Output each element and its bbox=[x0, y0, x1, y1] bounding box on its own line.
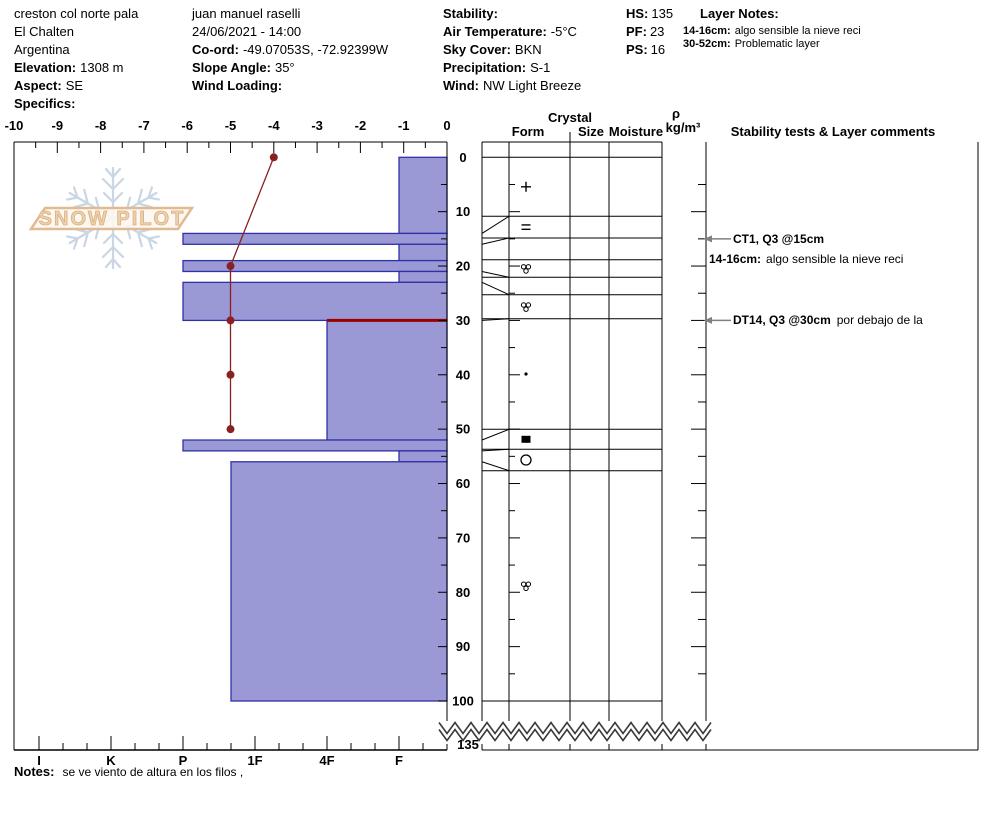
stability-test-dt14-text: DT14, Q3 @30cm bbox=[733, 313, 831, 327]
stability-test-ct1-text: CT1, Q3 @15cm bbox=[733, 232, 824, 246]
grain-symbol-dot-4 bbox=[524, 372, 527, 375]
grain-symbol-cluster-7 bbox=[521, 582, 530, 591]
grain-symbol-plus-0 bbox=[521, 182, 531, 192]
stability-test-dt14: DT14, Q3 @30cmpor debajo de la bbox=[733, 313, 923, 327]
hardness-bar-layer-5 bbox=[183, 282, 447, 320]
depth-axis-label: 50 bbox=[456, 422, 470, 437]
temp-axis-label: -5 bbox=[225, 118, 237, 133]
depth-axis-label: 0 bbox=[459, 150, 466, 165]
profile-chart-svg: SNOW PILOT-10-9-8-7-6-5-4-3-2-10IKP1F4FF… bbox=[0, 0, 994, 840]
layer-comment-text: algo sensible la nieve reci bbox=[766, 252, 903, 266]
hardness-axis-label: 4F bbox=[319, 753, 334, 768]
snowpilot-watermark-text: SNOW PILOT bbox=[39, 208, 186, 230]
temp-axis-label: -10 bbox=[5, 118, 24, 133]
grain-symbol-square-filled-5 bbox=[522, 436, 531, 443]
temp-axis-label: 0 bbox=[443, 118, 450, 133]
temp-axis-label: -2 bbox=[355, 118, 367, 133]
hardness-bar-layer-9 bbox=[231, 462, 447, 701]
hardness-bar-layer-8 bbox=[399, 451, 447, 462]
hardness-bar-layer-4 bbox=[399, 271, 447, 282]
depth-axis-label: 60 bbox=[456, 476, 470, 491]
snowpilot-profile-page: { "info_left": { "site": "creston col no… bbox=[0, 0, 994, 840]
temp-axis-label: -4 bbox=[268, 118, 280, 133]
temperature-point-3 bbox=[227, 371, 235, 379]
temp-axis-label: -3 bbox=[311, 118, 323, 133]
notes-label: Notes: bbox=[14, 764, 54, 779]
notes-footer: Notes:se ve viento de altura en los filo… bbox=[14, 764, 243, 779]
hardness-bar-layer-1 bbox=[183, 233, 447, 244]
temperature-point-0 bbox=[270, 153, 278, 161]
stability-arrow-head-2 bbox=[704, 317, 712, 324]
depth-axis-label: 10 bbox=[456, 204, 470, 219]
hardness-bar-layer-6 bbox=[327, 320, 447, 440]
depth-axis-label: 100 bbox=[452, 694, 474, 709]
depth-axis-label: 40 bbox=[456, 367, 470, 382]
layer-comment-14-16: 14-16cm:algo sensible la nieve reci bbox=[709, 252, 903, 266]
notes-text: se ve viento de altura en los filos , bbox=[62, 765, 243, 779]
hardness-bar-layer-2 bbox=[399, 244, 447, 260]
hardness-bar-layer-0 bbox=[399, 157, 447, 233]
hardness-bar-layer-7 bbox=[183, 440, 447, 451]
hardness-bar-layer-3 bbox=[183, 261, 447, 272]
stability-arrow-head-0 bbox=[704, 235, 712, 242]
grain-symbol-circle-open-6 bbox=[521, 455, 531, 465]
temp-axis-label: -1 bbox=[398, 118, 410, 133]
depth-axis-label: 90 bbox=[456, 639, 470, 654]
temperature-point-4 bbox=[227, 425, 235, 433]
depth-axis-label: 80 bbox=[456, 585, 470, 600]
depth-axis-label: 20 bbox=[456, 259, 470, 274]
grain-symbol-equals-1 bbox=[522, 225, 531, 229]
total-depth-label: 135 bbox=[457, 737, 479, 752]
temp-axis-label: -7 bbox=[138, 118, 150, 133]
temp-axis-label: -8 bbox=[95, 118, 107, 133]
stability-test-ct1: CT1, Q3 @15cm bbox=[733, 232, 824, 246]
temp-axis-label: -6 bbox=[181, 118, 193, 133]
temperature-point-1 bbox=[227, 262, 235, 270]
temp-axis-label: -9 bbox=[52, 118, 64, 133]
grain-symbol-cluster-2 bbox=[521, 265, 530, 274]
temperature-point-2 bbox=[227, 316, 235, 324]
grain-symbol-cluster-3 bbox=[521, 303, 530, 312]
layer-comment-range: 14-16cm: bbox=[709, 252, 761, 266]
hardness-axis-label: 1F bbox=[247, 753, 262, 768]
depth-axis-label: 70 bbox=[456, 530, 470, 545]
depth-axis-label: 30 bbox=[456, 313, 470, 328]
hardness-axis-label: F bbox=[395, 753, 403, 768]
stability-test-dt14-comment: por debajo de la bbox=[837, 313, 923, 327]
